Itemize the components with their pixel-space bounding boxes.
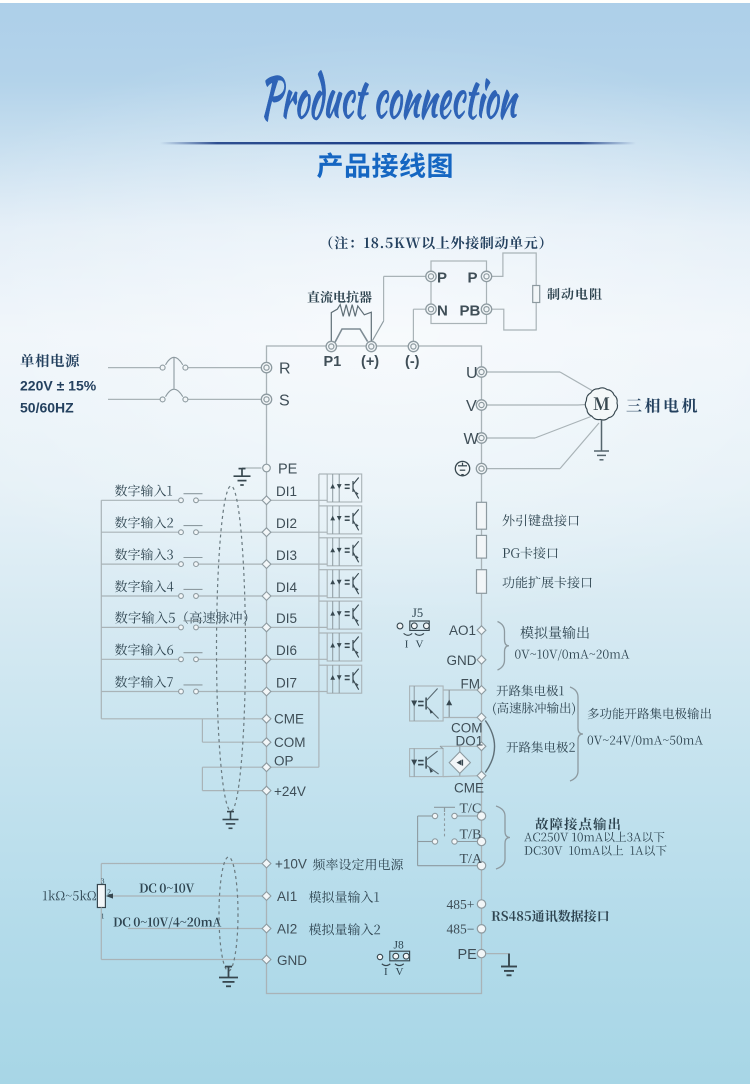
svg-text:DO1: DO1	[456, 733, 484, 748]
svg-text:J8: J8	[394, 940, 404, 952]
svg-text:I: I	[384, 966, 388, 978]
svg-text:T/A: T/A	[460, 852, 483, 867]
svg-text:V: V	[416, 639, 424, 651]
svg-text:S: S	[279, 392, 290, 409]
svg-text:+24V: +24V	[274, 784, 306, 799]
svg-text:W: W	[464, 431, 480, 448]
svg-text:COM: COM	[274, 735, 306, 750]
svg-text:50/60HZ: 50/60HZ	[20, 400, 74, 416]
svg-text:DI3: DI3	[276, 548, 297, 563]
svg-text:(+): (+)	[361, 354, 379, 370]
svg-text:+10V: +10V	[275, 857, 307, 872]
svg-text:485+: 485+	[447, 897, 475, 912]
svg-text:GND: GND	[447, 653, 477, 668]
svg-text:DI2: DI2	[276, 516, 297, 531]
svg-text:P: P	[468, 270, 478, 287]
svg-text:CME: CME	[454, 781, 484, 796]
svg-text:DI4: DI4	[276, 580, 298, 595]
svg-text:I: I	[405, 639, 409, 651]
svg-text:R: R	[279, 361, 291, 378]
svg-text:AI2: AI2	[277, 922, 297, 937]
svg-text:AI1: AI1	[277, 889, 297, 904]
svg-text:485−: 485−	[447, 922, 475, 937]
svg-text:J5: J5	[412, 606, 423, 620]
svg-text:3: 3	[101, 876, 105, 885]
svg-text:FM: FM	[461, 676, 481, 691]
svg-text:PE: PE	[278, 462, 298, 478]
svg-text:PB: PB	[460, 302, 481, 319]
svg-text:P: P	[437, 270, 447, 287]
svg-text:OP: OP	[274, 754, 294, 769]
svg-text:CME: CME	[274, 711, 304, 726]
svg-text:T/C: T/C	[460, 801, 482, 816]
svg-text:V: V	[396, 966, 404, 978]
svg-text:DI5: DI5	[276, 611, 297, 626]
svg-text:P1: P1	[324, 354, 342, 370]
svg-text:T/B: T/B	[460, 828, 482, 843]
svg-text:AO1: AO1	[449, 623, 476, 638]
svg-text:DI7: DI7	[276, 675, 297, 690]
svg-text:GND: GND	[277, 953, 307, 968]
svg-text:DI1: DI1	[276, 484, 297, 499]
svg-text:DI6: DI6	[276, 643, 297, 658]
svg-text:220V ± 15%: 220V ± 15%	[20, 378, 97, 394]
svg-text:N: N	[437, 302, 448, 319]
svg-text:U: U	[466, 365, 478, 382]
svg-text:PE: PE	[458, 947, 478, 963]
svg-text:V: V	[466, 398, 477, 415]
svg-text:(-): (-)	[405, 354, 420, 370]
